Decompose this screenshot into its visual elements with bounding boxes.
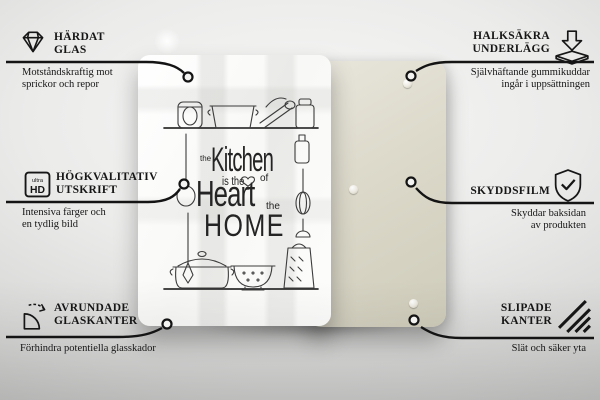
doodle-ladle: [177, 134, 195, 206]
svg-text:HD: HD: [30, 185, 45, 196]
doodle-whisk: [296, 169, 310, 214]
feature-title-skyddsfilm: SKYDDSFILM: [470, 185, 550, 198]
board-print-design: the Kitchen is the of Heart the HOME: [138, 55, 331, 326]
feature-title-halksaekra-underlaegg: HALKSÄKRA UNDERLÄGG: [473, 30, 550, 55]
product-infographic: the Kitchen is the of Heart the HOME: [0, 0, 600, 400]
rounded-corner-icon: [18, 300, 50, 337]
ground-edges-icon: [556, 298, 593, 340]
rubber-pad: [409, 299, 418, 308]
feature-title-avrundade-glaskanter: AVRUNDADE GLASKANTER: [54, 302, 138, 327]
feature-desc-skyddsfilm: Skyddar baksidan av produkten: [511, 208, 586, 231]
feature-desc-halksaekra-underlaegg: Självhäftande gummikuddar ingår i uppsät…: [471, 67, 590, 90]
doodle-bottle: [295, 135, 309, 163]
doodle-colander: [231, 266, 275, 290]
feature-desc-haerdat-glas: Motståndskraftig mot sprickor och repor: [22, 67, 113, 90]
svg-text:of: of: [260, 173, 269, 184]
doodle-grater: [284, 244, 314, 288]
svg-text:HOME: HOME: [204, 207, 285, 242]
feature-title-haerdat-glas: HÄRDAT GLAS: [54, 31, 105, 56]
rubber-pad: [403, 79, 412, 88]
design-slogan: the Kitchen is the of Heart the HOME: [196, 141, 285, 243]
rubber-pad: [349, 185, 358, 194]
product-front-board: the Kitchen is the of Heart the HOME: [138, 55, 331, 326]
svg-text:ultra: ultra: [32, 178, 44, 184]
anti-slip-pad-icon: [553, 29, 591, 70]
svg-text:the: the: [200, 154, 212, 163]
feature-title-hoegkvalitativ-utskrift: HÖGKVALITATIV UTSKRIFT: [56, 171, 158, 196]
doodle-jar-small: [296, 99, 314, 128]
diamond-icon: [18, 29, 48, 60]
shield-check-icon: [552, 168, 584, 208]
feature-desc-avrundade-glaskanter: Förhindra potentiella glasskador: [20, 343, 156, 355]
feature-desc-slipade-kanter: Slät och säker yta: [512, 343, 586, 355]
feature-title-slipade-kanter: SLIPADE KANTER: [501, 302, 552, 327]
doodle-pot-small: [208, 106, 258, 128]
doodle-pot-large: [170, 252, 234, 289]
doodle-spoon: [183, 213, 193, 283]
ultra-hd-icon: ultra HD: [24, 171, 51, 203]
feature-desc-hoegkvalitativ-utskrift: Intensiva färger och en tydlig bild: [22, 207, 106, 230]
doodle-grinder: [260, 98, 295, 128]
doodle-masher: [296, 219, 310, 237]
glass-glare: [152, 26, 182, 56]
doodle-jar-large: [178, 102, 202, 128]
